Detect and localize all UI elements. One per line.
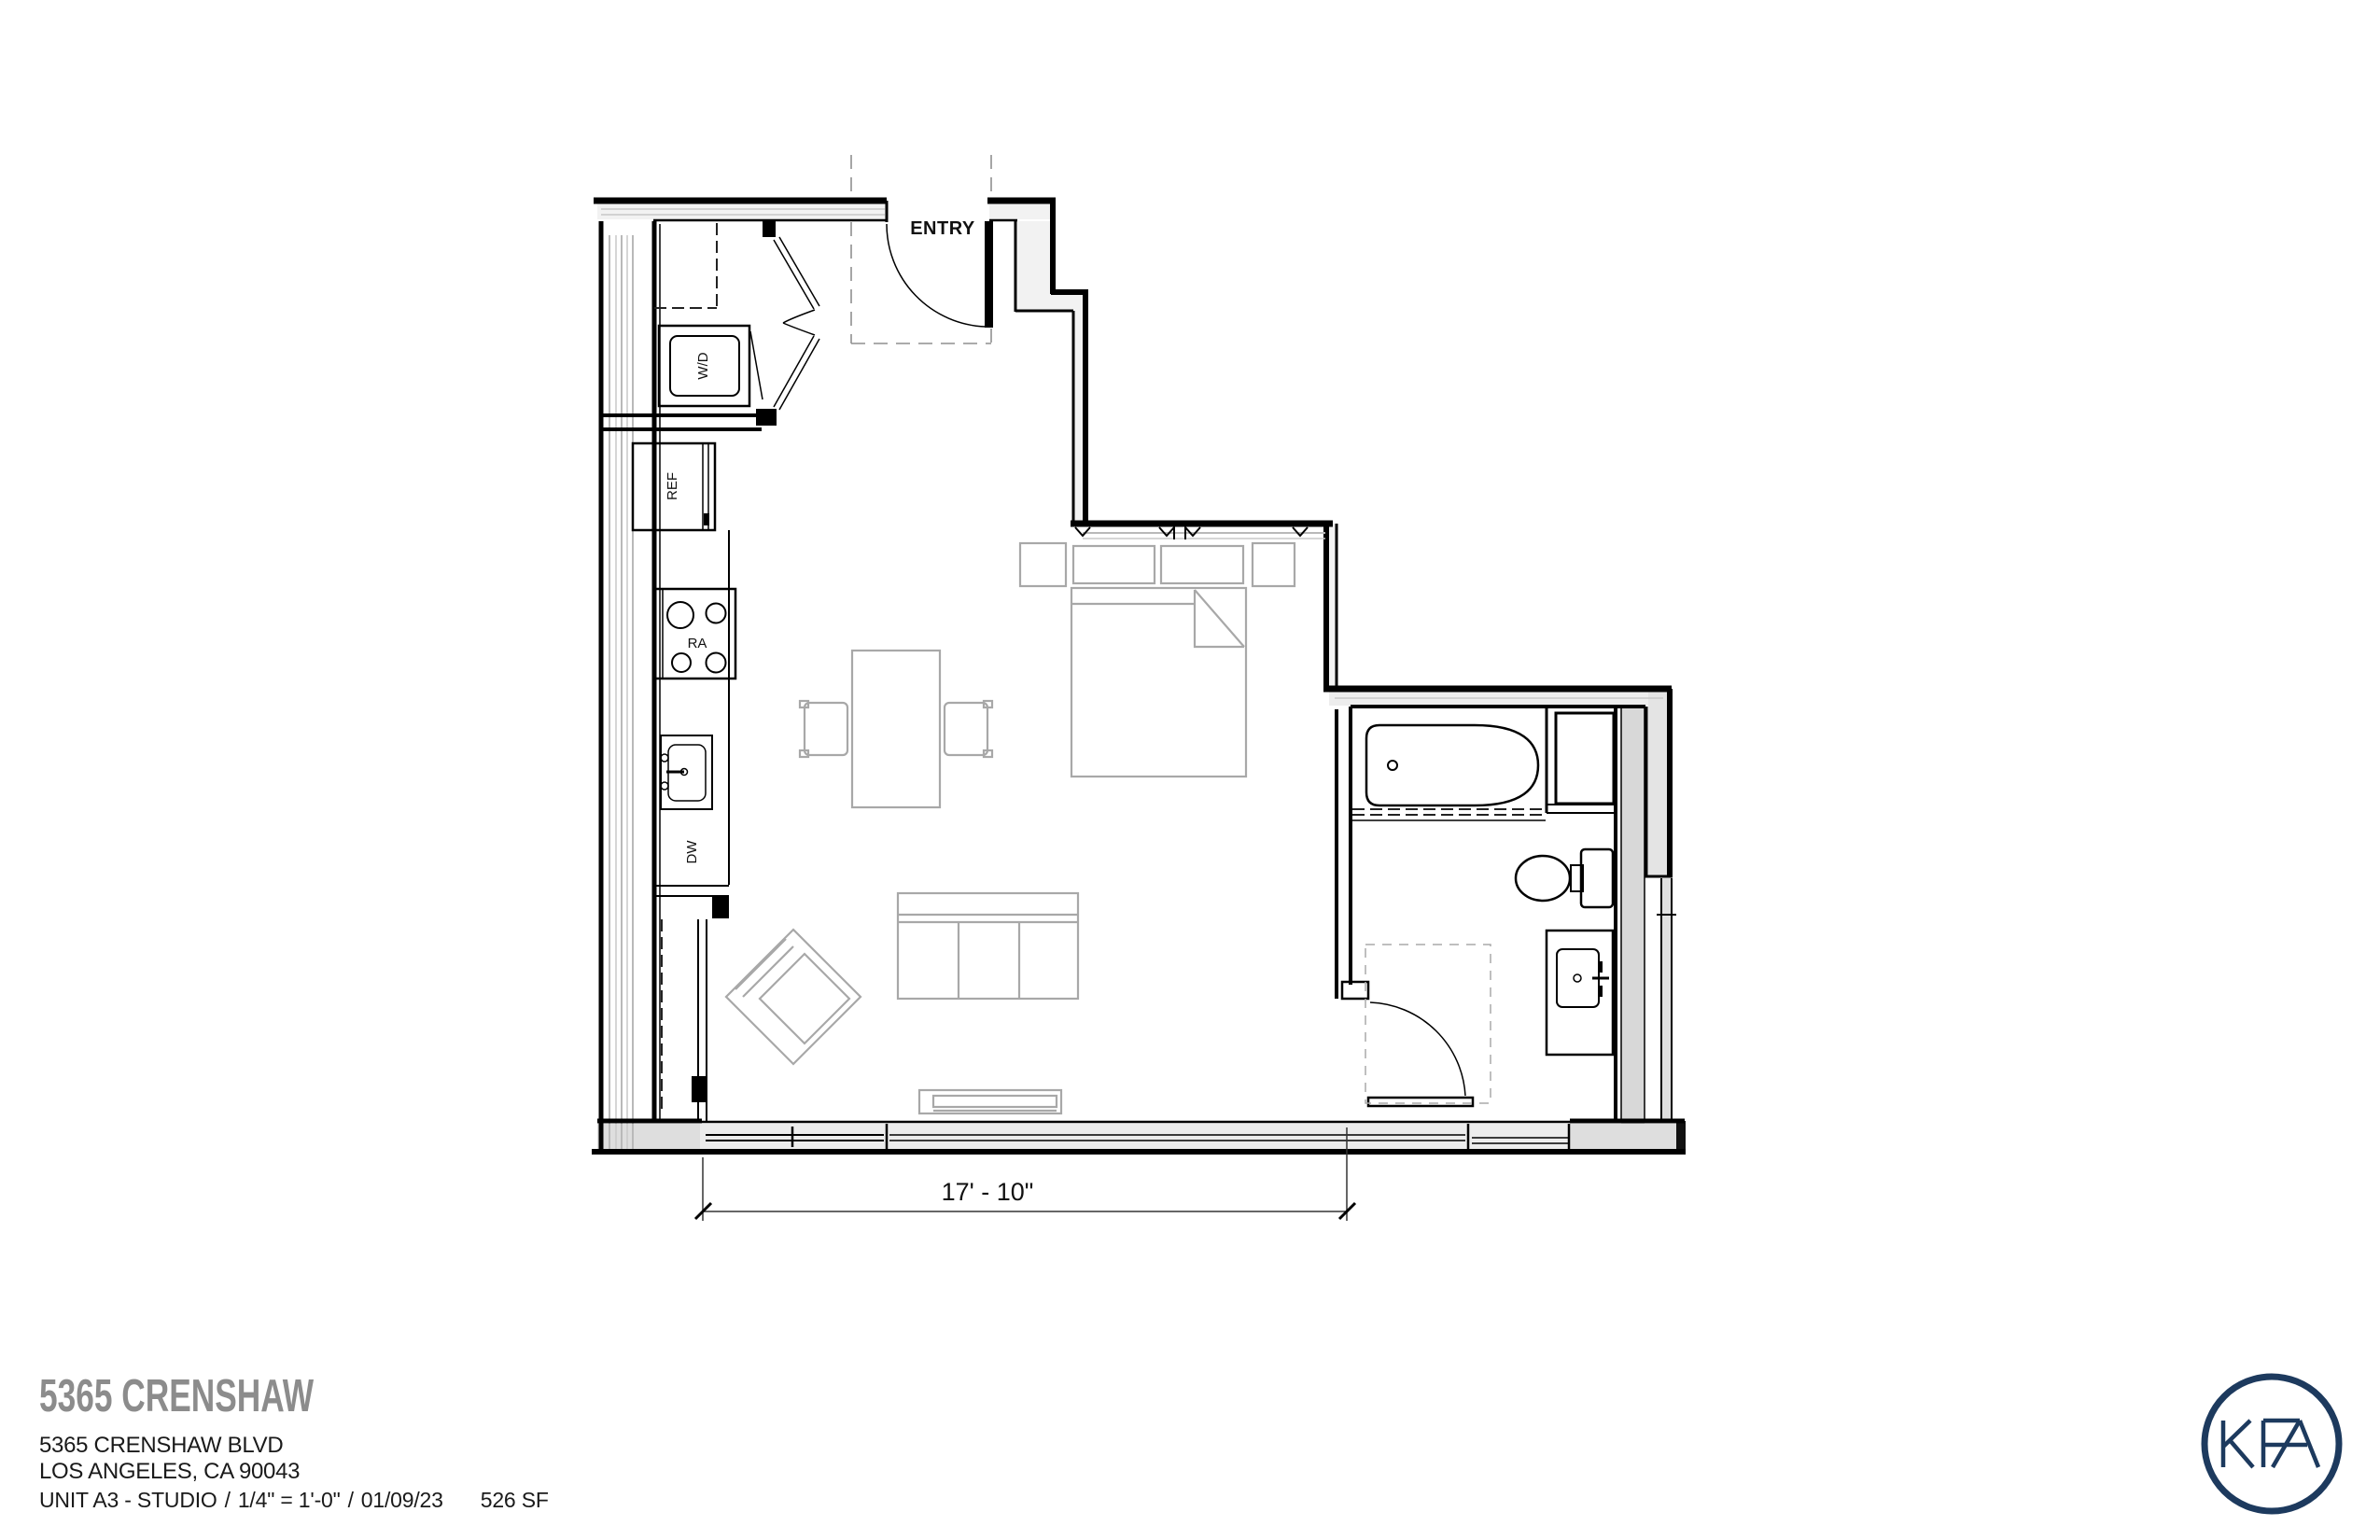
unit-label: UNIT A3 - STUDIO [39,1488,217,1512]
bathtub [1352,707,1547,820]
bed [1071,588,1246,777]
dimension-text: 17' - 10" [942,1178,1034,1206]
area-label: 526 SF [481,1488,549,1512]
bathroom-door [1368,1002,1473,1106]
wall-fills [597,203,1686,1153]
washer-dryer-label: W/D [695,352,711,379]
entry-soffit-dashed [851,155,991,343]
entry-door-leaf [985,221,993,328]
entry-label: ENTRY [910,218,975,239]
wd-closet: W/D [601,221,819,429]
address-line-2: LOS ANGELES, CA 90043 [39,1459,693,1485]
entry-door-swing-arc [887,224,986,327]
bathroom [1337,707,1616,1106]
separator: / [225,1488,231,1512]
date-label: 01/09/23 [361,1488,443,1512]
dishwasher-label: DW [684,840,700,864]
left-party-wall [601,221,660,1152]
lounge-chair [726,930,861,1064]
kfa-logo-letters [2223,1421,2318,1467]
refrigerator-label: REF [665,472,680,500]
vanity [1547,931,1613,1055]
bifold-doors [774,237,819,410]
project-name: 5365 CRENSHAW [39,1374,510,1420]
dining-table [800,651,992,807]
scale-label: 1/4" = 1'-0" [238,1488,341,1512]
kfa-logo [2195,1367,2349,1521]
furniture [726,543,1295,1113]
nightstand-left [1020,543,1066,586]
separator: / [348,1488,354,1512]
bed-window-wall [1071,524,1333,539]
nightstand-right [1253,543,1295,586]
range: RA [655,589,735,679]
sofa [898,893,1078,999]
unit-info-line: UNIT A3 - STUDIO/1/4" = 1'-0"/01/09/2352… [39,1488,549,1513]
bath-niche [1556,713,1614,804]
pillow [1161,546,1243,583]
address-line-1: 5365 CRENSHAW BLVD [39,1433,693,1459]
kitchen: REF RA DW [633,443,735,918]
sheet: ENTRY W/D REF [0,0,2380,1540]
kitchen-sink [661,735,712,809]
range-label: RA [688,636,707,651]
storage-closet [662,919,707,1123]
media-console [919,1090,1061,1113]
entry: ENTRY [851,155,993,343]
pillow [1073,546,1155,583]
toilet [1516,849,1613,907]
title-block: 5365 CRENSHAW 5365 CRENSHAW BLVD LOS ANG… [39,1374,693,1486]
floor-plan: ENTRY W/D REF [0,0,2380,1540]
